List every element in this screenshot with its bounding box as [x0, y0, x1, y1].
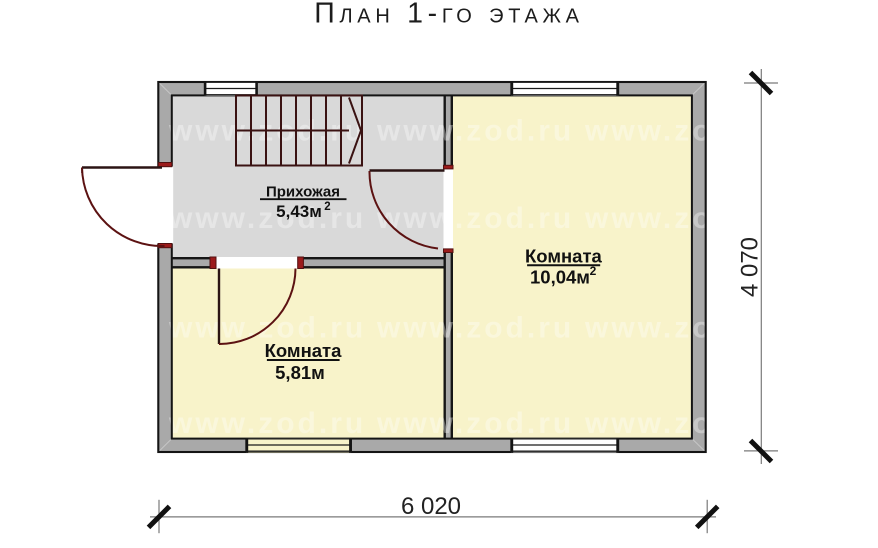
- svg-text:www.zod.ru: www.zod.ru: [584, 202, 782, 235]
- svg-text:www.zod.ru: www.zod.ru: [376, 407, 574, 440]
- svg-text:План 1-го этажа: План 1-го этажа: [314, 0, 583, 30]
- svg-text:2: 2: [324, 201, 330, 213]
- svg-text:Прихожая: Прихожая: [266, 183, 340, 200]
- svg-text:2: 2: [590, 264, 597, 278]
- svg-text:www.zod.ru: www.zod.ru: [584, 115, 782, 148]
- svg-text:www.zod.ru: www.zod.ru: [584, 312, 782, 345]
- svg-text:Комната: Комната: [265, 340, 343, 361]
- svg-text:5,43м: 5,43м: [276, 202, 322, 221]
- svg-text:www.zod.ru: www.zod.ru: [168, 202, 366, 235]
- svg-text:www.zod.ru: www.zod.ru: [168, 407, 366, 440]
- svg-text:www.zod.ru: www.zod.ru: [376, 202, 574, 235]
- svg-text:www.zod.ru: www.zod.ru: [376, 115, 574, 148]
- svg-text:5,81м: 5,81м: [275, 362, 325, 383]
- svg-text:www.zod.ru: www.zod.ru: [376, 312, 574, 345]
- svg-text:10,04м: 10,04м: [530, 267, 590, 288]
- svg-text:4 070: 4 070: [737, 237, 764, 297]
- svg-text:6 020: 6 020: [401, 493, 461, 520]
- svg-text:www.zod.ru: www.zod.ru: [584, 407, 782, 440]
